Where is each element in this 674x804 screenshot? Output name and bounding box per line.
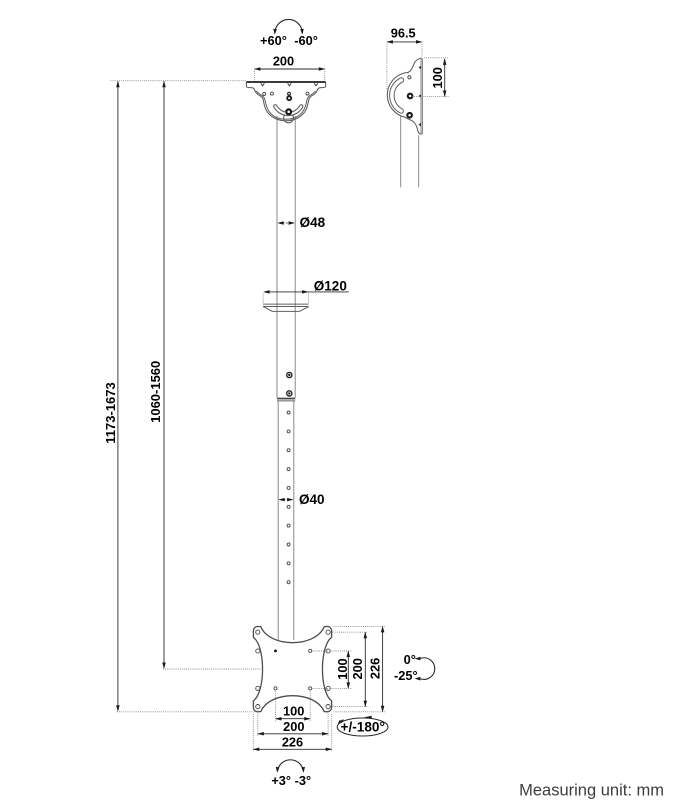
svg-text:-25°: -25° — [394, 668, 418, 683]
svg-text:Ø40: Ø40 — [299, 492, 325, 507]
svg-text:Ø120: Ø120 — [314, 278, 347, 293]
svg-text:226: 226 — [282, 734, 303, 749]
svg-text:96.5: 96.5 — [391, 25, 416, 40]
svg-text:200: 200 — [273, 53, 294, 68]
svg-text:+3° -3°: +3° -3° — [271, 773, 311, 788]
svg-text:Ø48: Ø48 — [300, 215, 326, 230]
svg-text:100: 100 — [283, 704, 304, 719]
svg-text:100: 100 — [335, 658, 350, 679]
svg-text:0°: 0° — [404, 652, 416, 667]
svg-text:1173-1673: 1173-1673 — [103, 382, 118, 443]
svg-text:200: 200 — [350, 658, 365, 679]
svg-text:1060-1560: 1060-1560 — [148, 361, 163, 423]
svg-text:226: 226 — [368, 658, 383, 679]
svg-text:-60°: -60° — [294, 33, 318, 48]
svg-text:+/-180°: +/-180° — [341, 720, 385, 735]
svg-text:+60°: +60° — [260, 33, 287, 48]
svg-text:100: 100 — [430, 67, 445, 88]
svg-text:200: 200 — [283, 719, 304, 734]
svg-text:Measuring unit: mm: Measuring unit: mm — [519, 782, 664, 800]
